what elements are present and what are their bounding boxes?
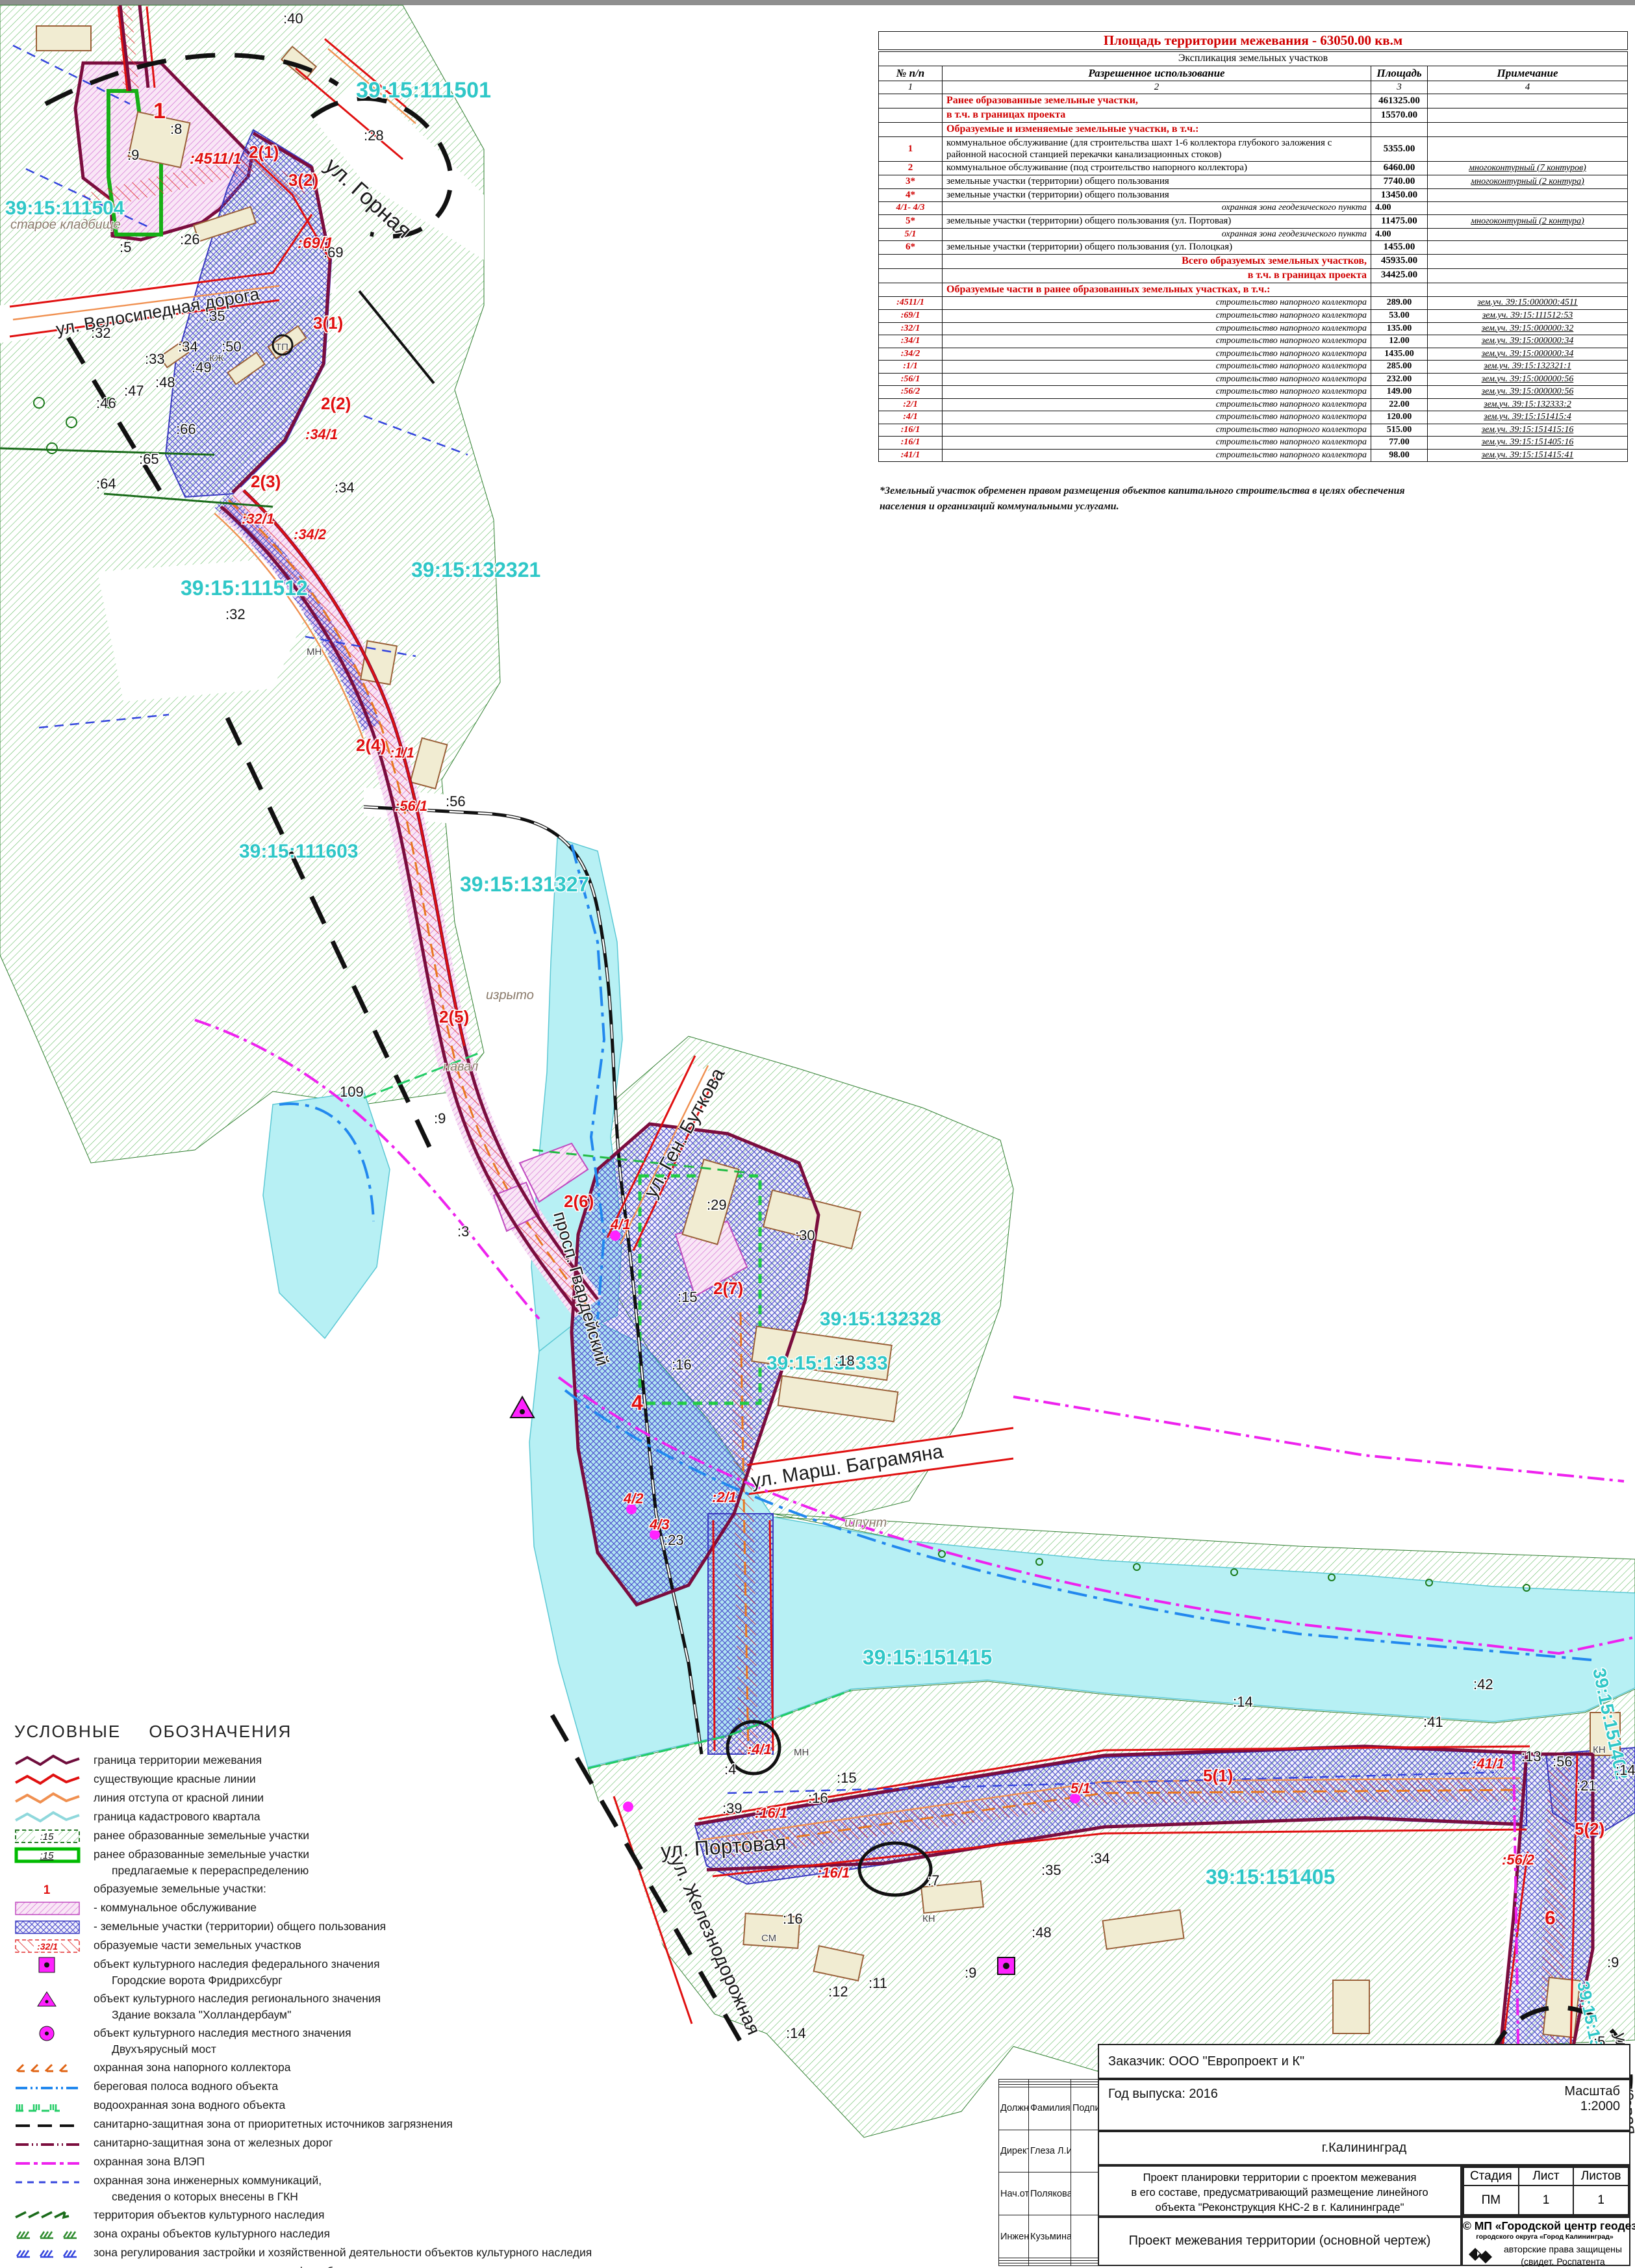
table-cell: Образуемые части в ранее образованных зе… [943,283,1371,297]
table-row: Ранее образованные земельные участки,461… [879,94,1628,108]
table-cell: многоконтурный (7 контуров) [1428,162,1628,175]
legend-item: линия отступа от красной линии [14,1789,670,1807]
table-cell [1428,268,1628,283]
table-cell: многоконтурный (2 контура) [1428,175,1628,189]
table-cell: строительство напорного коллектора [943,297,1371,310]
year-label: Год выпуска: 2016 [1108,2087,1218,2102]
legend-item-sublabel: предлагаемые к перераспределению [14,1864,670,1879]
legend-item: - коммунальное обслуживание [14,1898,670,1917]
scale-value: 1:2000 [1564,2099,1620,2114]
table-cell: :16/1 [879,424,943,437]
dashdotdot-blue-icon [14,2078,86,2095]
legend-item: объект культурного наследия региональног… [14,1989,670,2008]
table-cell: многоконтурный (2 контура) [1428,214,1628,228]
title-block-cell: Полякова Л.П. [1029,2172,1071,2215]
svg-text::32/1: :32/1 [37,1941,58,1952]
heritage-regional-icon [511,1397,534,1418]
table-cell: 7740.00 [1371,175,1428,189]
parcel-contour-label: :56/1 [395,798,427,814]
table-row: 2коммунальное обслуживание (под строител… [879,162,1628,175]
table-cell: строительство напорного коллектора [943,309,1371,322]
zigzag-icon [14,1809,86,1826]
table-row: Образуемые и изменяемые земельные участк… [879,123,1628,137]
legend-item-label: водоохранная зона водного объекта [86,2098,285,2112]
table-cell: 120.00 [1371,411,1428,424]
table-row: :41/1строительство напорного коллектора9… [879,449,1628,462]
title-block-cell: Должн-ть [999,2087,1029,2130]
table-cell: 4* [879,188,943,202]
table-cell: 15570.00 [1371,108,1428,123]
parcel-contour-label: :2/1 [712,1489,737,1505]
table-row: :4/1строительство напорного коллектора12… [879,411,1628,424]
table-column-number: 4 [1428,81,1628,94]
table-row: в т.ч. в границах проекта34425.00 [879,268,1628,283]
zigzag-icon [14,1771,86,1788]
terrain-note-label: изрыто [486,988,534,1002]
table-cell: 289.00 [1371,297,1428,310]
parcel-number-label: :48 [1032,1924,1052,1941]
parcel-contour-label: 4/1 [610,1216,631,1232]
table-cell: зем.уч. 39:15:132333:2 [1428,398,1628,411]
parcel-number-label: :35 [1041,1862,1061,1878]
title-block-cell [1071,2215,1098,2258]
table-cell [1428,94,1628,108]
table-cell: 4.00 [1371,228,1428,241]
table-cell: 77.00 [1371,437,1428,450]
table-cell: в т.ч. в границах проекта [943,108,1371,123]
parcel-number-label: :34 [335,479,355,496]
table-row: :1/1строительство напорного коллектора28… [879,361,1628,374]
parcel-number-label: :11 [868,1975,887,1991]
parcel-number-label: :12 [828,1983,848,2000]
legend-item-label: зона регулирования застройки и хозяйстве… [86,2246,592,2260]
legend-item-label: охранная зона ВЛЭП [86,2155,205,2169]
stage-value: ПМ [1464,2185,1519,2215]
legend-item-label: зона охраняемого природного ландшафта об… [86,2265,487,2268]
parcel-number-label: :32 [91,325,111,341]
table-cell: 232.00 [1371,373,1428,386]
table-cell: зем.уч. 39:15:151415:16 [1428,424,1628,437]
legend-item: охранная зона ВЛЭП [14,2152,670,2171]
building-type-label: ТП [275,342,288,353]
table-cell [1428,202,1628,215]
legend-item-label: существующие красные линии [86,1772,256,1786]
legend-item: :15ранее образованные земельные участки [14,1826,670,1845]
table-cell: зем.уч. 39:15:000000:56 [1428,386,1628,399]
legend-item: зона охраняемого природного ландшафта об… [14,2262,670,2268]
table-cell [1371,283,1428,297]
parcel-number-label: :13 [1521,1748,1541,1765]
table-row: :69/1строительство напорного коллектора5… [879,309,1628,322]
title-block-cell: Директор [999,2130,1029,2172]
parcel-number-label: :35 [205,308,225,324]
signature-header-row: Должн-тьФамилияПодпись [999,2087,1098,2130]
table-cell: :41/1 [879,449,943,462]
table-cell: строительство напорного коллектора [943,386,1371,399]
project-description-line: Проект планировки территории с проектом … [1099,2171,1460,2185]
table-column-header: № п/п [879,66,943,81]
table-cell [1371,123,1428,137]
table-cell: строительство напорного коллектора [943,361,1371,374]
cadastral-quarter-label: 39:15:111504 [5,197,125,219]
parcel-contour-label: 5/1 [1071,1780,1091,1796]
legend-item: граница кадастрового квартала [14,1807,670,1826]
box-green-solid-icon: :15 [14,1846,86,1863]
table-cell: строительство напорного коллектора [943,424,1371,437]
parcel-contour-label: 2(4) [356,735,386,755]
parcel-number-label: :48 [155,374,175,390]
legend-item: охранная зона напорного коллектора [14,2058,670,2077]
geocenter-name: © МП «Городской центр геодезии» [1463,2219,1627,2233]
legend-item-label: береговая полоса водного объекта [86,2080,278,2093]
parcel-contour-label: :16/1 [755,1805,787,1821]
legend-item-label: линия отступа от красной линии [86,1791,264,1805]
parcel-contour-label: 2(7) [713,1279,743,1298]
legend-item: :32/1образуемые части земельных участков [14,1936,670,1955]
parcel-number-label: :16 [808,1790,828,1806]
parcel-number-label: :50 [222,338,242,355]
table-row: :16/1строительство напорного коллектора7… [879,437,1628,450]
table-cell: :32/1 [879,322,943,335]
num-red-icon: 1 [14,1881,86,1898]
table-cell: строительство напорного коллектора [943,398,1371,411]
legend-item: береговая полоса водного объекта [14,2077,670,2096]
svg-text::15: :15 [40,1850,55,1861]
table-cell: Всего образуемых земельных участков, [943,254,1371,268]
table-cell: :1/1 [879,361,943,374]
legend: УСЛОВНЫЕ ОБОЗНАЧЕНИЯ граница территории … [14,1722,670,2268]
table-cell: 4.00 [1371,202,1428,215]
legend-item: :15ранее образованные земельные участки [14,1845,670,1864]
parcel-number-label: :16 [672,1357,692,1373]
cadastral-quarter-label: 39:15:131327 [460,873,589,896]
table-cell: 1455.00 [1371,241,1428,255]
table-cell: коммунальное обслуживание (для строитель… [943,137,1371,162]
table-cell [879,108,943,123]
table-cell: строительство напорного коллектора [943,322,1371,335]
legend-item-label: - земельные участки (территории) общего … [86,1920,386,1933]
legend-item-label: образуемые части земельных участков [86,1939,301,1952]
table-row: :2/1строительство напорного коллектора22… [879,398,1628,411]
table-cell: строительство напорного коллектора [943,348,1371,361]
geocenter-block: © МП «Городской центр геодезии» городско… [1463,2219,1627,2268]
ticks-icon [14,2226,86,2243]
parcel-contour-label: 4/3 [649,1516,670,1533]
legend-item-sublabel: Городские ворота Фридрихсбург [14,1974,670,1989]
parcel-number-label: :18 [835,1353,855,1369]
table-cell: строительство напорного коллектора [943,449,1371,462]
geocenter-sub: городского округа «Город Калининград» [1463,2233,1627,2241]
parcel-number-label: :39 [722,1800,742,1816]
table-row: :16/1строительство напорного коллектора5… [879,424,1628,437]
parcel-number-label: :65 [139,451,159,467]
project-description-line: в его составе, предусматривающий размеще… [1099,2185,1460,2200]
legend-item: объект культурного наследия местного зна… [14,2024,670,2043]
table-cell: земельные участки (территории) общего по… [943,241,1371,255]
parcel-number-label: :21 [1577,1777,1597,1794]
parcel-number-label: :8 [170,121,182,137]
parcel-contour-label: 5(2) [1575,1819,1604,1839]
table-cell: зем.уч. 39:15:000000:56 [1428,373,1628,386]
table-cell [879,94,943,108]
title-block-cell: Инженер [999,2215,1029,2258]
parcel-number-label: :9 [127,147,139,163]
parcel-number-label: :34 [1090,1850,1110,1867]
legend-item-label: ранее образованные земельные участки [86,1829,309,1842]
table-cell: 2 [879,162,943,175]
table-cell: 515.00 [1371,424,1428,437]
table-cell: охранная зона геодезического пункта [943,228,1371,241]
table-cell: 34425.00 [1371,268,1428,283]
building-type-label: МН [794,1747,809,1758]
parcel-number-label: :41 [1423,1714,1443,1730]
table-title: Площадь территории межевания - 63050.00 … [879,32,1628,51]
building-type-label: СМ [761,1933,776,1944]
table-row: :56/2строительство напорного коллектора1… [879,386,1628,399]
table-cell: земельные участки (территории) общего по… [943,175,1371,189]
table-row: 6*земельные участки (территории) общего … [879,241,1628,255]
table-cell: 461325.00 [1371,94,1428,108]
sheet-header: Лист [1519,2167,1574,2185]
building-type-label: КН [1593,1744,1606,1755]
legend-item-label: зона охраны объектов культурного наследи… [86,2227,330,2241]
parcel-number-label: :7 [928,1872,939,1889]
footnote-line-2: населения и организаций коммунальными ус… [880,499,1627,515]
legend-item-label: граница территории межевания [86,1753,262,1767]
dash-black-icon [14,2116,86,2133]
zigzag-icon [14,1752,86,1769]
legend-item-label: объект культурного наследия региональног… [86,1992,381,2006]
table-cell: зем.уч. 39:15:000000:32 [1428,322,1628,335]
table-cell [1428,283,1628,297]
explication-table: Площадь территории межевания - 63050.00 … [878,31,1627,462]
parcel-number-label: :40 [283,10,303,27]
legend-item: санитарно-защитная зона от приоритетных … [14,2115,670,2134]
signature-row: Нач.отд.Полякова Л.П. [999,2172,1098,2215]
parcel-contour-label: 2(3) [251,472,281,491]
table-cell: зем.уч. 39:15:000000:34 [1428,348,1628,361]
box-red-hatch-icon: :32/1 [14,1937,86,1954]
table-column-header: Площадь [1371,66,1428,81]
legend-item-label: ранее образованные земельные участки [86,1848,309,1861]
circle-magenta-icon [14,2025,86,2042]
legend-item-label: граница кадастрового квартала [86,1810,260,1824]
table-cell: 5355.00 [1371,137,1428,162]
table-cell: 5* [879,214,943,228]
legend-item-sublabel: Здание вокзала "Холландербаум" [14,2008,670,2024]
legend-item: граница территории межевания [14,1751,670,1770]
table-cell: :4511/1 [879,297,943,310]
table-cell [1428,137,1628,162]
square-magenta-icon [14,1956,86,1973]
scale-label: Масштаб 1:2000 [1564,2084,1620,2114]
table-cell: :16/1 [879,437,943,450]
box-blue-cross-icon [14,1918,86,1935]
table-cell: зем.уч. 39:15:132321:1 [1428,361,1628,374]
parcel-number-label: :14 [1233,1694,1253,1710]
table-cell: строительство напорного коллектора [943,335,1371,348]
table-cell [879,283,943,297]
parcel-contour-label: :41/1 [1472,1755,1504,1772]
parcel-contour-label: 2(5) [439,1007,469,1026]
legend-item-label: объект культурного наследия федерального… [86,1957,380,1971]
table-column-header: Разрешенное использование [943,66,1371,81]
parcel-number-label: :9 [965,1965,976,1981]
doc-type-label: Проект межевания территории (основной че… [1099,2218,1460,2249]
table-colnum-row: 1234 [879,81,1628,94]
table-cell [1428,254,1628,268]
table-cell: охранная зона геодезического пункта [943,202,1371,215]
sheet: 39:15:11150139:15:11150439:15:11151239:1… [0,0,1635,2268]
triangle-magenta-icon [14,1991,86,2007]
dashdot-darkred-icon [14,2135,86,2152]
parcel-contour-label: 6 [1545,1907,1556,1929]
parcel-contour-label: 5(1) [1203,1766,1233,1785]
parcel-number-label: :16 [783,1911,803,1927]
table-cell: :34/1 [879,335,943,348]
parcel-number-label: :32 [225,606,246,622]
title-block-cell [1029,2263,1071,2266]
dashdot-magenta-icon [14,2154,86,2171]
parcel-number-label: :28 [364,127,384,144]
legend-item: зона охраны объектов культурного наследи… [14,2224,670,2243]
legend-item-label: объект культурного наследия местного зна… [86,2026,351,2040]
table-cell: 1435.00 [1371,348,1428,361]
project-description: Проект планировки территории с проектом … [1099,2167,1460,2215]
building-type-label: КЖ [209,353,224,364]
table-header-row: № п/пРазрешенное использованиеПлощадьПри… [879,66,1628,81]
title-block-cell: Подпись [1071,2087,1098,2130]
parcel-number-label: :46 [96,395,116,411]
parcel-number-label: :29 [707,1197,727,1213]
parcel-number-label: :15 [837,1770,857,1786]
parcel-number-label: :9 [434,1110,446,1127]
parcel-contour-label: 3(1) [313,313,343,333]
table-cell [879,123,943,137]
title-block-cell: Кузьмина Т.А. [1029,2215,1071,2258]
legend-item: - земельные участки (территории) общего … [14,1917,670,1936]
terrain-note-label: старое кладбище [10,218,121,232]
table-cell: 285.00 [1371,361,1428,374]
legend-item: водоохранная зона водного объекта [14,2096,670,2115]
table-cell: в т.ч. в границах проекта [943,268,1371,283]
title-block-cell: Глеза Л.И. [1029,2130,1071,2172]
table-cell: зем.уч. 39:15:000000:4511 [1428,297,1628,310]
parcel-number-label: :56 [1553,1753,1573,1770]
table-row: в т.ч. в границах проекта15570.00 [879,108,1628,123]
table-cell: 45935.00 [1371,254,1428,268]
table-cell: строительство напорного коллектора [943,373,1371,386]
legend-item-label: санитарно-защитная зона от железных доро… [86,2136,333,2150]
parcel-contour-label: :34/1 [305,426,338,442]
legend-item: территория объектов культурного наследия [14,2206,670,2224]
title-block-cell [1071,2172,1098,2215]
parcel-number-label: :69 [323,244,344,261]
parcel-number-label: :23 [664,1532,684,1548]
table-cell: 98.00 [1371,449,1428,462]
cadastral-quarter-label: 39:15:132321 [411,558,540,581]
parcel-number-label: :66 [176,421,196,437]
table-cell [879,254,943,268]
legend-item-label: санитарно-защитная зона от приоритетных … [86,2117,453,2131]
svg-text::15: :15 [40,1831,55,1842]
stage-header: Стадия [1464,2167,1519,2185]
wz-green-icon [14,2097,86,2114]
parcel-contour-label: 4/2 [623,1490,644,1507]
signatures-table: Должн-тьФамилияПодписьДиректорГлеза Л.И.… [998,2079,1098,2266]
table-row: 4*земельные участки (территории) общего … [879,188,1628,202]
table-cell: зем.уч. 39:15:151415:41 [1428,449,1628,462]
legend-item-label: охранная зона напорного коллектора [86,2061,291,2074]
zigzag-icon [14,1790,86,1807]
table-cell [1428,228,1628,241]
footnote-line-1: *Земельный участок обременен правом разм… [880,483,1627,499]
parcel-number-label: :64 [96,476,116,492]
stage-table: Стадия Лист Листов ПМ 1 1 [1462,2165,1630,2217]
legend-item-sublabel: Двухъярусный мост [14,2043,670,2058]
table-cell: 53.00 [1371,309,1428,322]
building-type-label: МН [307,646,322,657]
legend-item: объект культурного наследия федерального… [14,1955,670,1974]
sheet-value: 1 [1519,2185,1574,2215]
table-cell: 4/1- 4/3 [879,202,943,215]
ticks-icon [14,2263,86,2268]
parcel-contour-label: 2(6) [564,1191,594,1211]
parcel-number-label: :3 [457,1223,469,1240]
table-cell: Ранее образованные земельные участки, [943,94,1371,108]
sheets-header: Листов [1573,2167,1629,2185]
parcel-contour-label: :1/1 [390,745,414,761]
customer-label: Заказчик: ООО "Европроект и К" [1099,2045,1629,2069]
legend-item: санитарно-защитная зона от железных доро… [14,2134,670,2152]
table-row: 5*земельные участки (территории) общего … [879,214,1628,228]
table-cell: зем.уч. 39:15:151405:16 [1428,437,1628,450]
parcel-number-label: :49 [192,359,212,376]
table-cell: :56/1 [879,373,943,386]
empty-row [999,2263,1098,2266]
table-cell: 12.00 [1371,335,1428,348]
parcel-number-label: :14 [1616,1762,1635,1778]
table-row: 4/1- 4/3охранная зона геодезического пун… [879,202,1628,215]
parcel-contour-label: :56/2 [1502,1852,1535,1868]
legend-item: зона регулирования застройки и хозяйстве… [14,2243,670,2262]
legend-item-label: территория объектов культурного наследия [86,2208,324,2222]
table-column-number: 2 [943,81,1371,94]
table-row: Образуемые части в ранее образованных зе… [879,283,1628,297]
table-cell [1428,241,1628,255]
parcel-contour-label: 2(1) [249,142,279,162]
table-cell: :56/2 [879,386,943,399]
parcel-number-label: :42 [1473,1676,1493,1692]
geocentr-logo: Геоцентр [1463,2247,1499,2268]
table-column-header: Примечание [1428,66,1628,81]
table-cell: 5/1 [879,228,943,241]
zline-orange-icon [14,2059,86,2076]
table-row: :56/1строительство напорного коллектора2… [879,373,1628,386]
parcel-number-label: 109 [340,1084,364,1100]
table-row: :4511/1строительство напорного коллектор… [879,297,1628,310]
pond [263,1091,390,1338]
parcel-contour-label: 3(2) [288,170,318,190]
terr-green-icon [14,2207,86,2224]
table-cell: 13450.00 [1371,188,1428,202]
cadastral-quarter-label: 39:15:132328 [820,1308,941,1330]
title-block-cell: Нач.отд. [999,2172,1029,2215]
parcel-number-label: :33 [145,351,165,367]
table-cell: :69/1 [879,309,943,322]
table-row: 3*земельные участки (территории) общего … [879,175,1628,189]
parcel-number-label: :5 [120,239,131,255]
